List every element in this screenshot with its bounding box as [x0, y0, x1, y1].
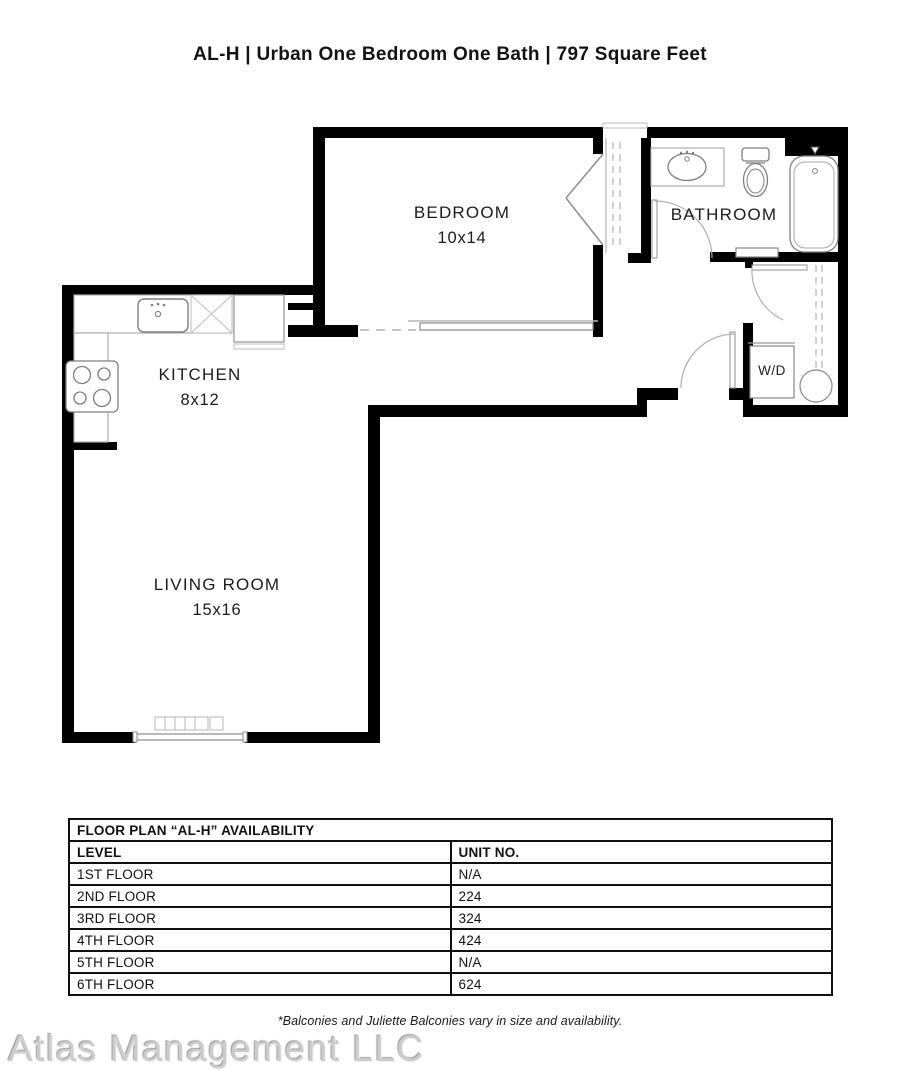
- kitchen-sink: [138, 299, 188, 332]
- refrigerator: [234, 295, 284, 349]
- availability-table: FLOOR PLAN “AL-H” AVAILABILITY LEVEL UNI…: [68, 818, 833, 996]
- bedroom-closet-french-doors: [566, 154, 603, 245]
- floor-plan-page: AL-H | Urban One Bedroom One Bath | 797 …: [0, 0, 900, 1080]
- water-heater: [800, 370, 832, 402]
- kitchen-label: KITCHEN 8x12: [120, 362, 280, 413]
- table-row: 2ND FLOOR 224: [69, 885, 832, 907]
- bathroom-vanity: [651, 148, 724, 186]
- living-room-label: LIVING ROOM 15x16: [97, 572, 337, 623]
- unit-cell: N/A: [451, 863, 833, 885]
- entry-closet-rod: [816, 265, 822, 370]
- bedroom-name: BEDROOM: [414, 203, 510, 222]
- level-cell: 6TH FLOOR: [69, 973, 451, 995]
- unit-cell: 224: [451, 885, 833, 907]
- bedroom-dims: 10x14: [438, 229, 487, 247]
- table-title-row: FLOOR PLAN “AL-H” AVAILABILITY: [69, 819, 832, 841]
- level-header: LEVEL: [69, 841, 451, 863]
- bedroom-window-ledge: [360, 321, 598, 330]
- living-room-dims: 15x16: [193, 601, 242, 619]
- level-cell: 2ND FLOOR: [69, 885, 451, 907]
- unit-cell: 324: [451, 907, 833, 929]
- bedroom-label: BEDROOM 10x14: [362, 200, 562, 251]
- toilet: [742, 148, 769, 197]
- bathroom-threshold: [736, 248, 778, 257]
- table-row: 4TH FLOOR 424: [69, 929, 832, 951]
- level-cell: 1ST FLOOR: [69, 863, 451, 885]
- bathroom-name: BATHROOM: [671, 205, 778, 224]
- table-title: FLOOR PLAN “AL-H” AVAILABILITY: [69, 819, 832, 841]
- table-row: 6TH FLOOR 624: [69, 973, 832, 995]
- hallway-door: [681, 332, 735, 388]
- living-room-window: [133, 732, 247, 742]
- balcony-footnote: *Balconies and Juliette Balconies vary i…: [0, 1014, 900, 1028]
- table-header-row: LEVEL UNIT NO.: [69, 841, 832, 863]
- closet-lintel: [603, 123, 647, 128]
- unit-header: UNIT NO.: [451, 841, 833, 863]
- living-room-name: LIVING ROOM: [154, 575, 281, 594]
- level-cell: 4TH FLOOR: [69, 929, 451, 951]
- bedroom-closet-rod: [606, 138, 620, 253]
- table-row: 3RD FLOOR 324: [69, 907, 832, 929]
- bathroom-label: BATHROOM: [634, 202, 814, 227]
- hall-closet-door: [752, 265, 807, 320]
- unit-cell: N/A: [451, 951, 833, 973]
- company-watermark: Atlas Management LLC: [8, 1028, 425, 1070]
- baseboard-heater: [155, 717, 223, 730]
- level-cell: 5TH FLOOR: [69, 951, 451, 973]
- table-row: 5TH FLOOR N/A: [69, 951, 832, 973]
- table-row: 1ST FLOOR N/A: [69, 863, 832, 885]
- kitchen-dims: 8x12: [181, 391, 220, 409]
- bathtub: [790, 147, 838, 252]
- unit-cell: 624: [451, 973, 833, 995]
- level-cell: 3RD FLOOR: [69, 907, 451, 929]
- unit-cell: 424: [451, 929, 833, 951]
- stove-range: [66, 361, 118, 412]
- dishwasher: [191, 295, 232, 333]
- washer-dryer-label: W/D: [750, 363, 794, 378]
- kitchen-name: KITCHEN: [158, 365, 241, 384]
